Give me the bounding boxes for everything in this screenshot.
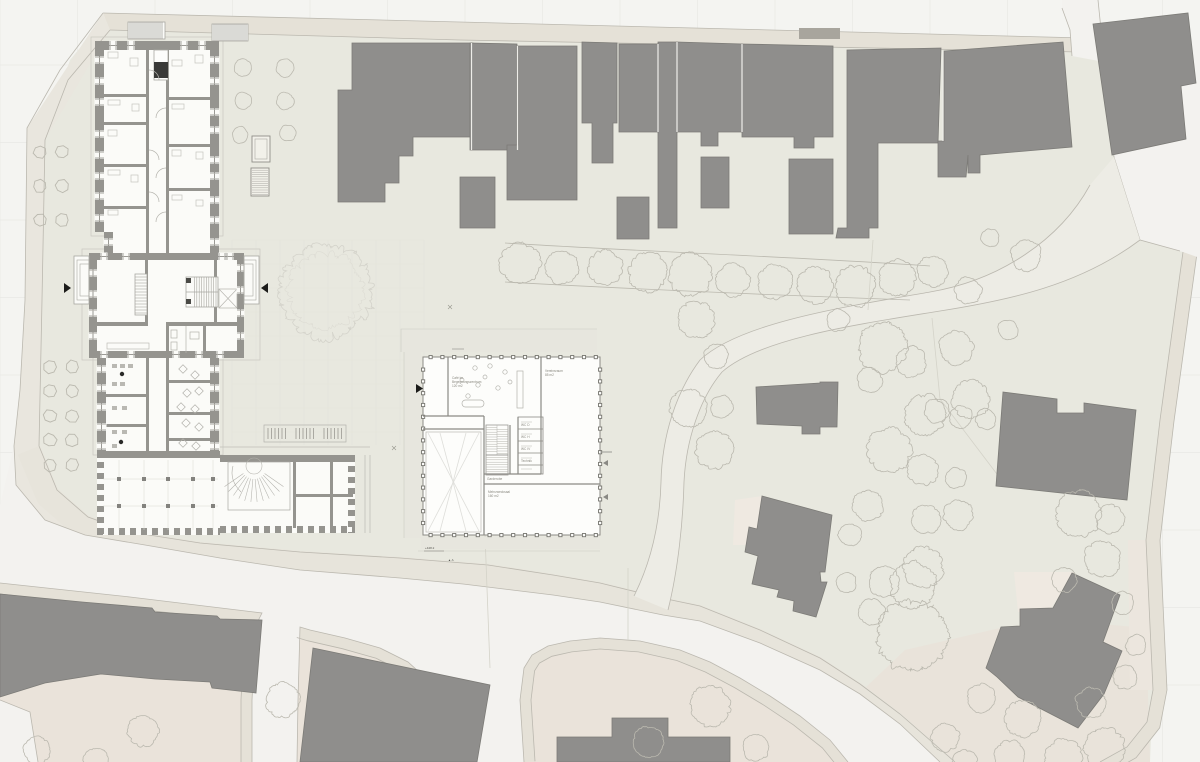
svg-text:WC IV: WC IV (521, 447, 531, 451)
svg-text:WC D: WC D (521, 423, 530, 427)
svg-text:Garderobe: Garderobe (487, 477, 502, 481)
svg-text:WC H: WC H (521, 435, 530, 439)
svg-text:120 m2: 120 m2 (452, 384, 463, 388)
svg-text:85 m2: 85 m2 (545, 373, 554, 377)
svg-text:Technik: Technik (521, 459, 532, 463)
svg-text:▲ A: ▲ A (448, 558, 454, 562)
svg-text:+448.2: +448.2 (425, 546, 435, 550)
svg-text:160 m2: 160 m2 (488, 494, 499, 498)
